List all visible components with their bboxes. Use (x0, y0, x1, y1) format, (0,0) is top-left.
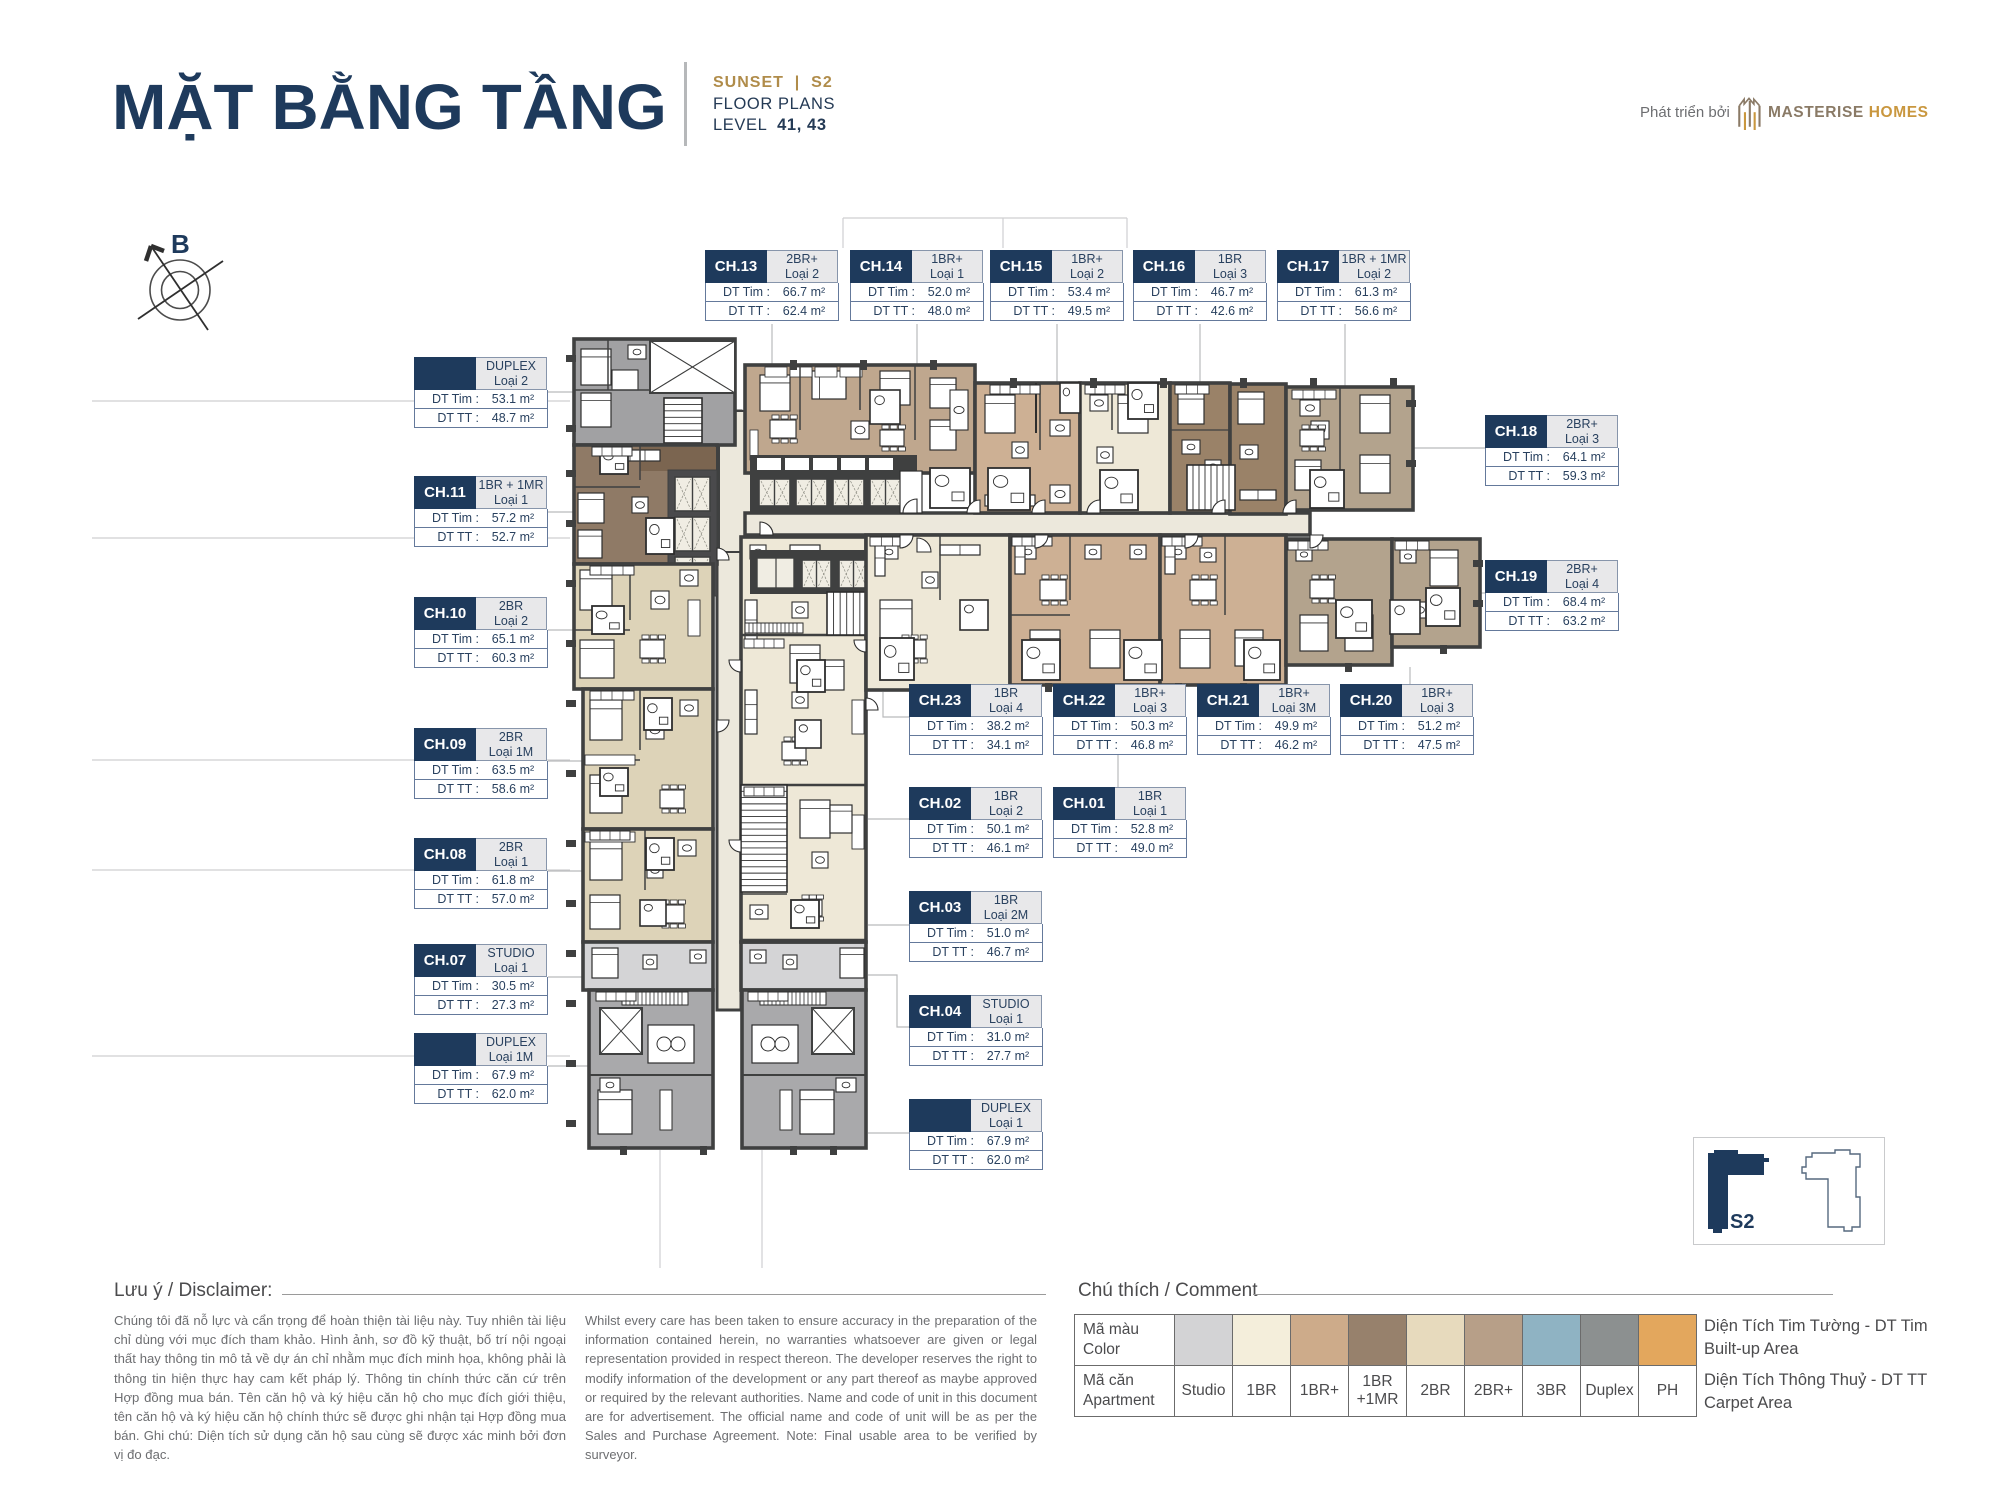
svg-text:S2: S2 (1730, 1211, 1754, 1233)
